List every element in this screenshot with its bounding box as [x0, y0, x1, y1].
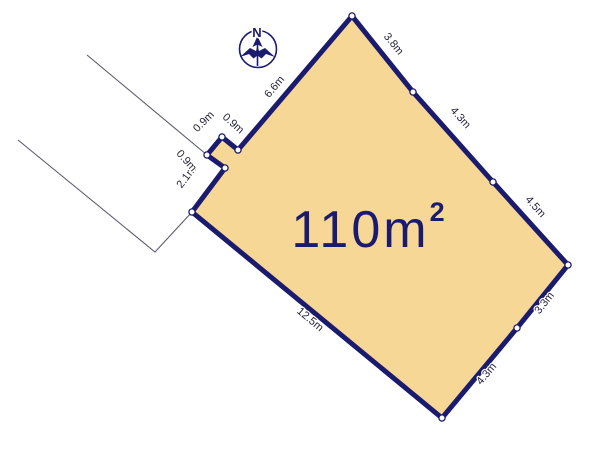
vertex-marker: [565, 262, 571, 268]
dimension-label: 4.3m: [448, 105, 473, 131]
vertex-marker: [204, 152, 210, 158]
area-superscript: 2: [430, 197, 445, 227]
vertex-marker: [219, 134, 225, 140]
vertex-marker: [349, 13, 355, 19]
vertex-marker: [189, 209, 195, 215]
land-plot-page: 3.8m4.3m4.5m3.3m4.3m12.5m2.1m0.9m0.9m0.9…: [0, 0, 600, 450]
area-label: 110m2: [291, 197, 444, 259]
boundary-line: [87, 55, 207, 155]
dimension-label: 0.9m: [220, 111, 246, 136]
vertex-marker: [235, 147, 241, 153]
dimension-label: 0.9m: [191, 109, 217, 135]
boundary-line: [18, 140, 192, 252]
vertex-marker: [410, 89, 416, 95]
plot-svg: 3.8m4.3m4.5m3.3m4.3m12.5m2.1m0.9m0.9m0.9…: [0, 0, 600, 450]
vertex-marker: [514, 325, 520, 331]
vertex-marker: [490, 179, 496, 185]
compass-north-label: N: [252, 25, 261, 40]
north-compass: N: [240, 25, 277, 68]
vertex-marker: [222, 165, 228, 171]
vertex-marker: [439, 415, 445, 421]
area-value: 110m: [291, 201, 429, 259]
